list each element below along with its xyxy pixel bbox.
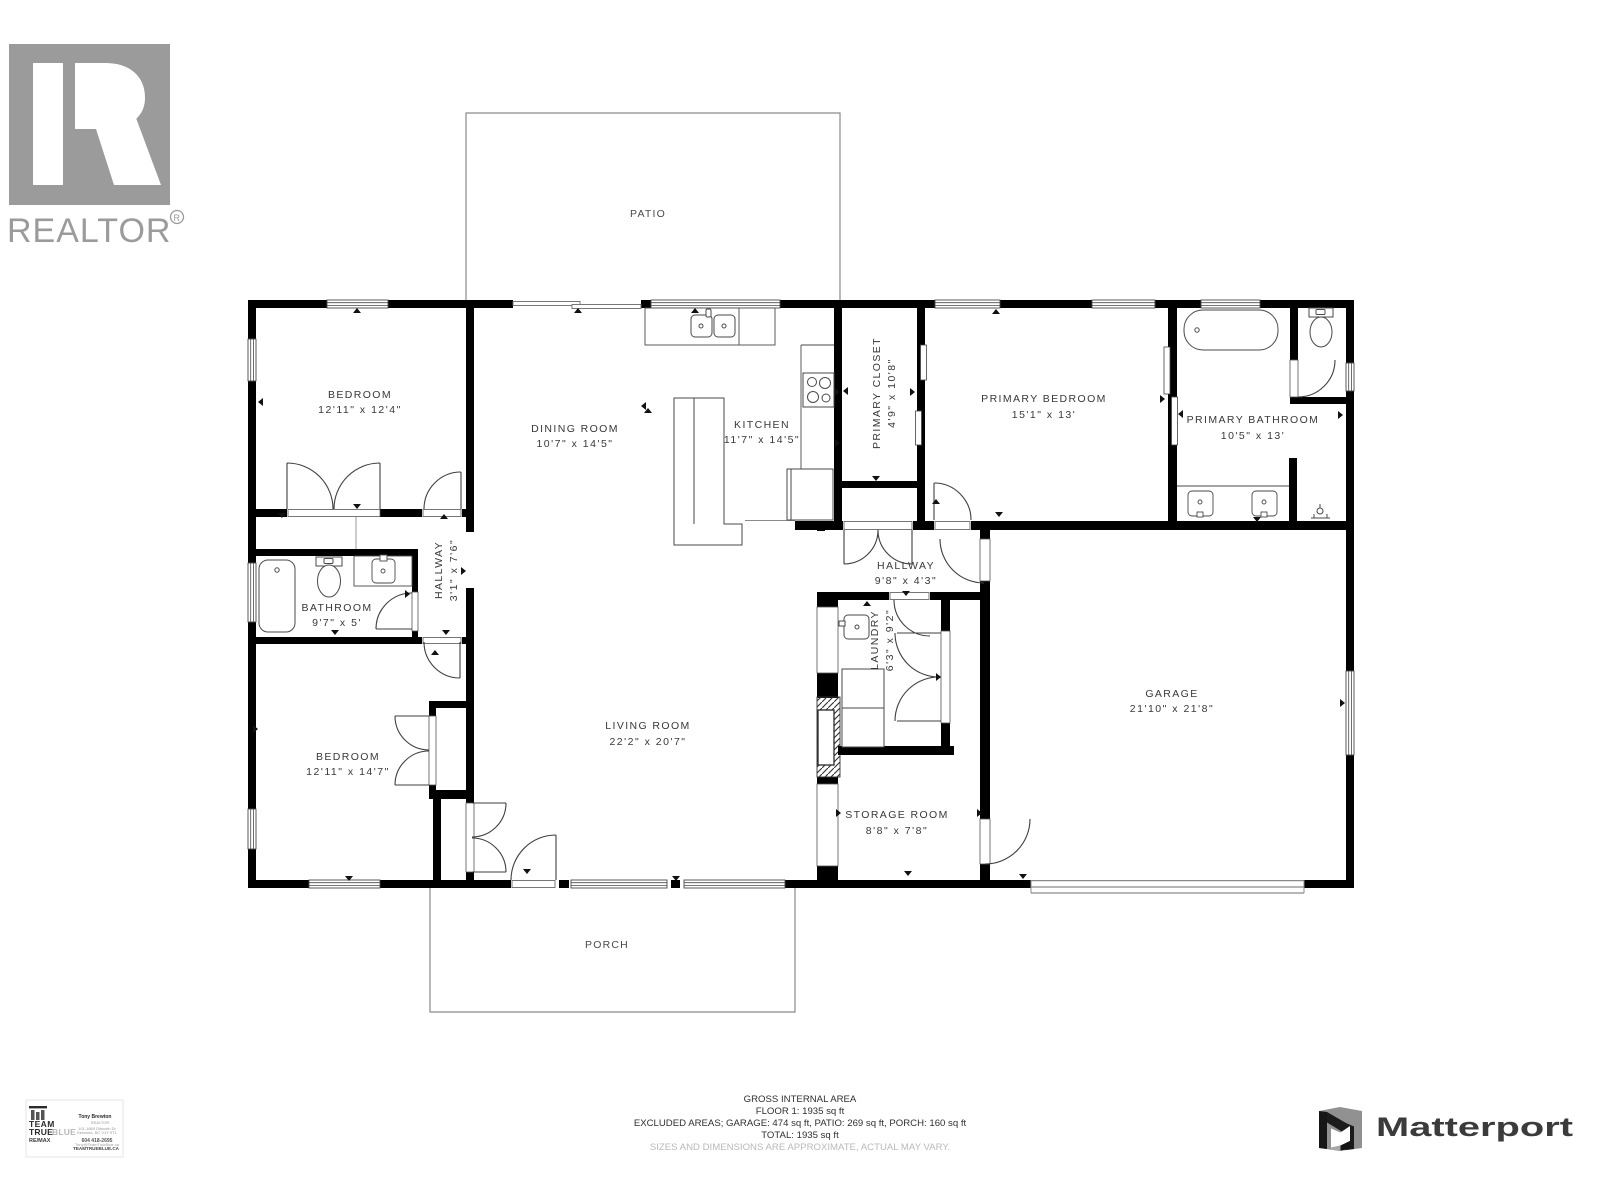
svg-text:Kelowna, BC V1Y 9T1: Kelowna, BC V1Y 9T1 bbox=[77, 1130, 118, 1135]
svg-text:DINING ROOM: DINING ROOM bbox=[531, 423, 619, 435]
svg-text:12'11" x 12'4": 12'11" x 12'4" bbox=[318, 404, 402, 416]
svg-text:EXCLUDED AREAS; GARAGE: 474 sq: EXCLUDED AREAS; GARAGE: 474 sq ft, PATIO… bbox=[634, 1118, 967, 1129]
svg-text:15'1" x 13': 15'1" x 13' bbox=[1012, 409, 1077, 421]
svg-text:GARAGE: GARAGE bbox=[1145, 688, 1198, 700]
svg-text:STORAGE ROOM: STORAGE ROOM bbox=[845, 809, 949, 821]
svg-text:R: R bbox=[174, 213, 181, 223]
svg-text:LAUNDRY: LAUNDRY bbox=[869, 610, 881, 670]
svg-text:BLUE: BLUE bbox=[52, 1127, 76, 1137]
svg-text:TRUE: TRUE bbox=[29, 1127, 53, 1137]
svg-text:TEAMTRUEBLUE.CA: TEAMTRUEBLUE.CA bbox=[73, 1146, 120, 1151]
svg-text:FLOOR 1: 1935 sq ft: FLOOR 1: 1935 sq ft bbox=[756, 1106, 845, 1117]
svg-text:12'11" x 14'7": 12'11" x 14'7" bbox=[306, 766, 390, 778]
svg-text:PRIMARY CLOSET: PRIMARY CLOSET bbox=[871, 337, 883, 449]
svg-text:REALTOR: REALTOR bbox=[91, 1120, 110, 1125]
svg-text:PRIMARY BATHROOM: PRIMARY BATHROOM bbox=[1187, 414, 1320, 426]
svg-text:6'3" x 9'2": 6'3" x 9'2" bbox=[884, 609, 896, 671]
svg-text:BATHROOM: BATHROOM bbox=[301, 602, 372, 614]
svg-text:Matterport: Matterport bbox=[1376, 1112, 1573, 1142]
svg-text:GROSS INTERNAL AREA: GROSS INTERNAL AREA bbox=[744, 1094, 857, 1105]
svg-text:BEDROOM: BEDROOM bbox=[328, 389, 392, 401]
svg-text:21'10" x 21'8": 21'10" x 21'8" bbox=[1130, 703, 1214, 715]
svg-text:LIVING ROOM: LIVING ROOM bbox=[605, 720, 690, 732]
svg-text:9'7" x 5': 9'7" x 5' bbox=[312, 617, 362, 629]
svg-text:3'1" x 7'6": 3'1" x 7'6" bbox=[448, 539, 460, 601]
svg-text:9'8" x 4'3": 9'8" x 4'3" bbox=[875, 575, 937, 587]
svg-text:HALLWAY: HALLWAY bbox=[877, 560, 935, 572]
svg-text:11'7" x 14'5": 11'7" x 14'5" bbox=[724, 434, 800, 446]
svg-text:HALLWAY: HALLWAY bbox=[433, 541, 445, 599]
svg-text:PATIO: PATIO bbox=[630, 208, 666, 220]
svg-text:10'5" x 13': 10'5" x 13' bbox=[1221, 430, 1286, 442]
svg-text:TOTAL: 1935 sq ft: TOTAL: 1935 sq ft bbox=[761, 1130, 839, 1141]
svg-text:RE/MAX: RE/MAX bbox=[29, 1138, 51, 1144]
svg-text:KITCHEN: KITCHEN bbox=[734, 419, 790, 431]
svg-text:8'8" x 7'8": 8'8" x 7'8" bbox=[866, 825, 928, 837]
svg-text:BEDROOM: BEDROOM bbox=[316, 751, 380, 763]
svg-text:PORCH: PORCH bbox=[585, 939, 629, 951]
svg-text:4'9" x 10'8": 4'9" x 10'8" bbox=[886, 358, 898, 428]
svg-text:22'2" x 20'7": 22'2" x 20'7" bbox=[609, 736, 686, 748]
svg-text:10'7" x 14'5": 10'7" x 14'5" bbox=[536, 438, 613, 450]
svg-text:REALTOR: REALTOR bbox=[7, 212, 171, 250]
svg-text:SIZES AND DIMENSIONS ARE APPRO: SIZES AND DIMENSIONS ARE APPROXIMATE, AC… bbox=[650, 1142, 950, 1153]
svg-text:PRIMARY BEDROOM: PRIMARY BEDROOM bbox=[981, 393, 1107, 405]
